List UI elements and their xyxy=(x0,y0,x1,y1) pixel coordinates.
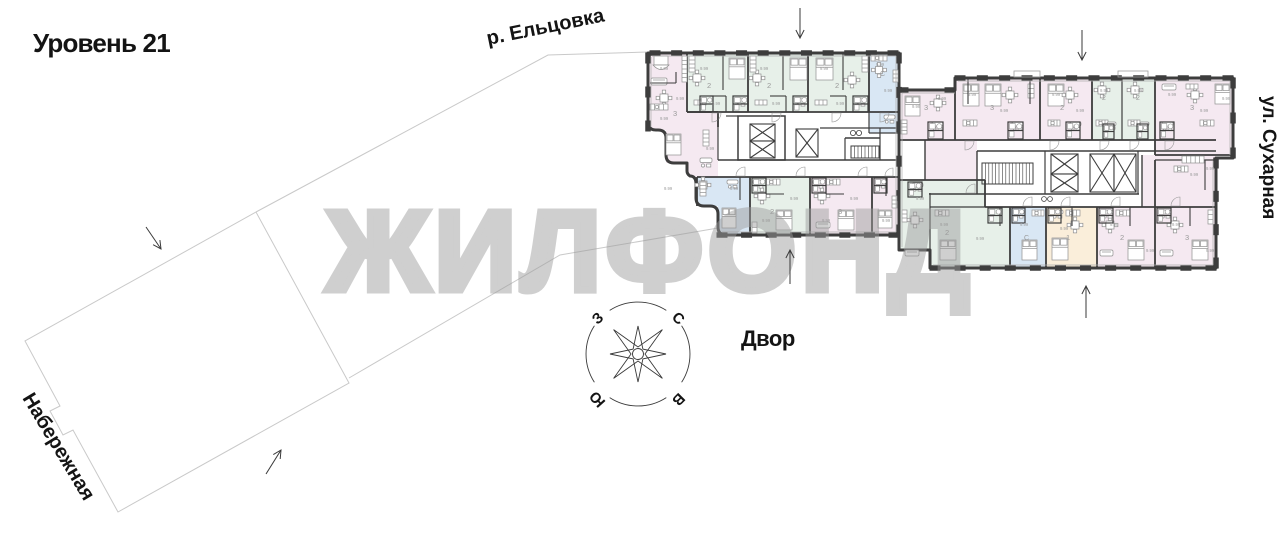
svg-text:9.99: 9.99 xyxy=(700,66,709,71)
svg-text:9.99: 9.99 xyxy=(876,62,885,67)
svg-text:9.99: 9.99 xyxy=(676,96,685,101)
svg-text:9.99: 9.99 xyxy=(1200,108,1209,113)
svg-text:9.99: 9.99 xyxy=(968,92,977,97)
svg-text:9.99: 9.99 xyxy=(976,236,985,241)
svg-text:3: 3 xyxy=(1185,233,1189,242)
svg-text:2: 2 xyxy=(1136,95,1140,102)
svg-text:9.99: 9.99 xyxy=(706,146,715,151)
svg-text:3: 3 xyxy=(924,103,928,112)
svg-text:3: 3 xyxy=(990,103,994,112)
svg-text:9.99: 9.99 xyxy=(1172,222,1181,227)
svg-text:С: С xyxy=(880,71,885,78)
svg-text:3: 3 xyxy=(1190,103,1194,112)
svg-text:ул. Сухарная: ул. Сухарная xyxy=(1258,96,1279,219)
svg-text:9.99: 9.99 xyxy=(1076,108,1085,113)
svg-text:9.99: 9.99 xyxy=(760,66,769,71)
svg-text:9.99: 9.99 xyxy=(772,101,781,106)
svg-text:2: 2 xyxy=(1060,103,1064,112)
svg-text:3: 3 xyxy=(673,109,677,118)
svg-text:2: 2 xyxy=(1102,95,1106,102)
svg-text:9.99: 9.99 xyxy=(1190,172,1199,177)
svg-text:9.99: 9.99 xyxy=(660,116,669,121)
svg-text:9.99: 9.99 xyxy=(820,66,829,71)
svg-text:9.99: 9.99 xyxy=(712,101,721,106)
svg-text:2: 2 xyxy=(1120,233,1124,242)
svg-text:9.99: 9.99 xyxy=(1020,222,1029,227)
svg-text:9.99: 9.99 xyxy=(1052,92,1061,97)
svg-text:9.99: 9.99 xyxy=(1000,108,1009,113)
svg-text:9.99: 9.99 xyxy=(836,101,845,106)
svg-text:Двор: Двор xyxy=(741,326,795,351)
svg-text:9.99: 9.99 xyxy=(1222,96,1231,101)
svg-text:ЖИЛФОНД: ЖИЛФОНД xyxy=(326,188,975,314)
svg-text:9.99: 9.99 xyxy=(1206,166,1215,171)
svg-text:9.99: 9.99 xyxy=(1134,88,1143,93)
svg-text:Уровень 21: Уровень 21 xyxy=(33,28,170,58)
svg-text:2: 2 xyxy=(767,81,771,90)
svg-text:9.99: 9.99 xyxy=(912,104,921,109)
svg-text:9.99: 9.99 xyxy=(1110,222,1119,227)
svg-text:9.99: 9.99 xyxy=(1168,92,1177,97)
svg-text:9.99: 9.99 xyxy=(1100,88,1109,93)
svg-text:9.99: 9.99 xyxy=(1146,248,1155,253)
svg-text:2: 2 xyxy=(707,81,711,90)
svg-text:2: 2 xyxy=(835,81,839,90)
svg-text:9.99: 9.99 xyxy=(884,88,893,93)
svg-text:9.99: 9.99 xyxy=(938,96,947,101)
svg-text:9.99: 9.99 xyxy=(1060,226,1069,231)
svg-text:С: С xyxy=(1024,235,1029,242)
svg-text:1: 1 xyxy=(1066,233,1070,242)
svg-text:9.99: 9.99 xyxy=(660,66,669,71)
svg-text:9.99: 9.99 xyxy=(1206,248,1215,253)
